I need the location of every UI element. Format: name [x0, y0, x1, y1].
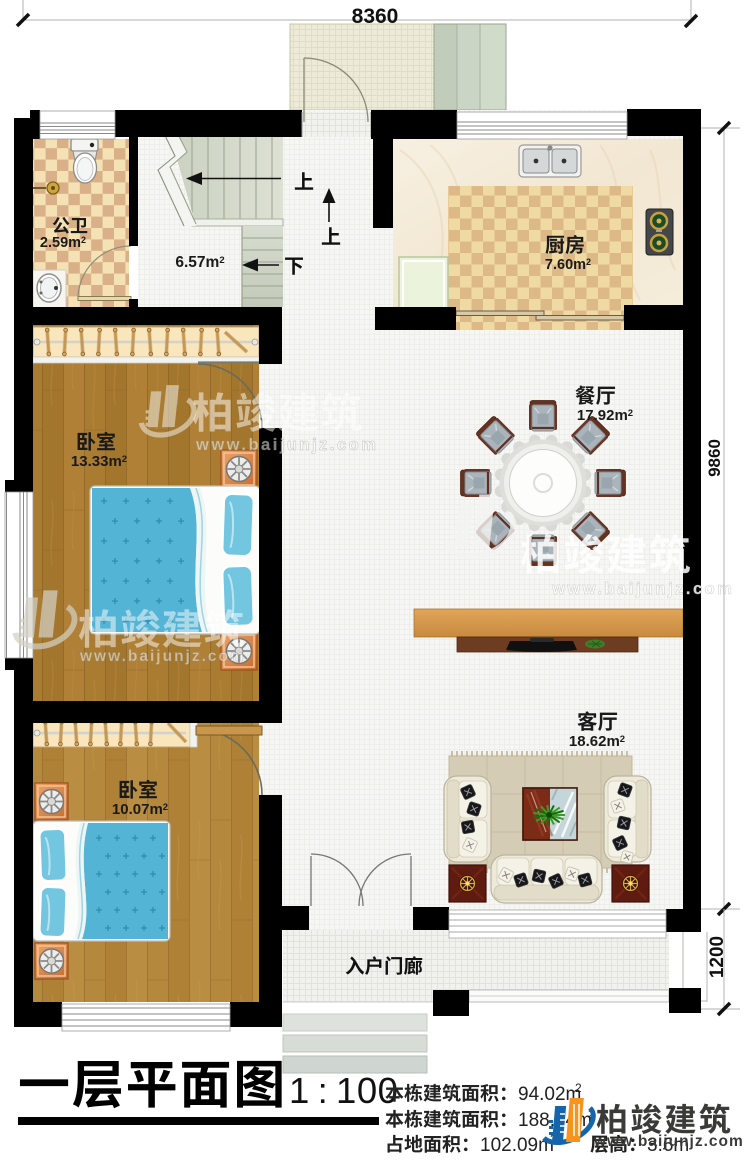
svg-text:www.baijunjz.com: www.baijunjz.com [551, 580, 734, 598]
svg-text:1 : 100: 1 : 100 [289, 1070, 398, 1111]
svg-text:102.09m: 102.09m [480, 1135, 554, 1156]
svg-text:2.59m2: 2.59m2 [40, 235, 86, 251]
svg-text:18.62m2: 18.62m2 [569, 733, 625, 750]
svg-text:17.92m2: 17.92m2 [577, 407, 633, 424]
svg-text:6.57m2: 6.57m2 [175, 254, 224, 271]
svg-text:7.60m2: 7.60m2 [545, 257, 591, 273]
svg-text:9860: 9860 [705, 439, 724, 477]
svg-text:13.33m2: 13.33m2 [71, 453, 127, 470]
svg-text:www.baijunjz.com: www.baijunjz.com [79, 648, 246, 665]
svg-text:2: 2 [575, 1081, 582, 1095]
svg-text:1200: 1200 [707, 936, 728, 978]
svg-text:10.07m2: 10.07m2 [112, 801, 168, 818]
svg-text:www.baijunjz.com: www.baijunjz.com [593, 1133, 744, 1150]
svg-text:8360: 8360 [352, 5, 399, 28]
svg-text:www.baijunjz.com: www.baijunjz.com [195, 436, 378, 454]
